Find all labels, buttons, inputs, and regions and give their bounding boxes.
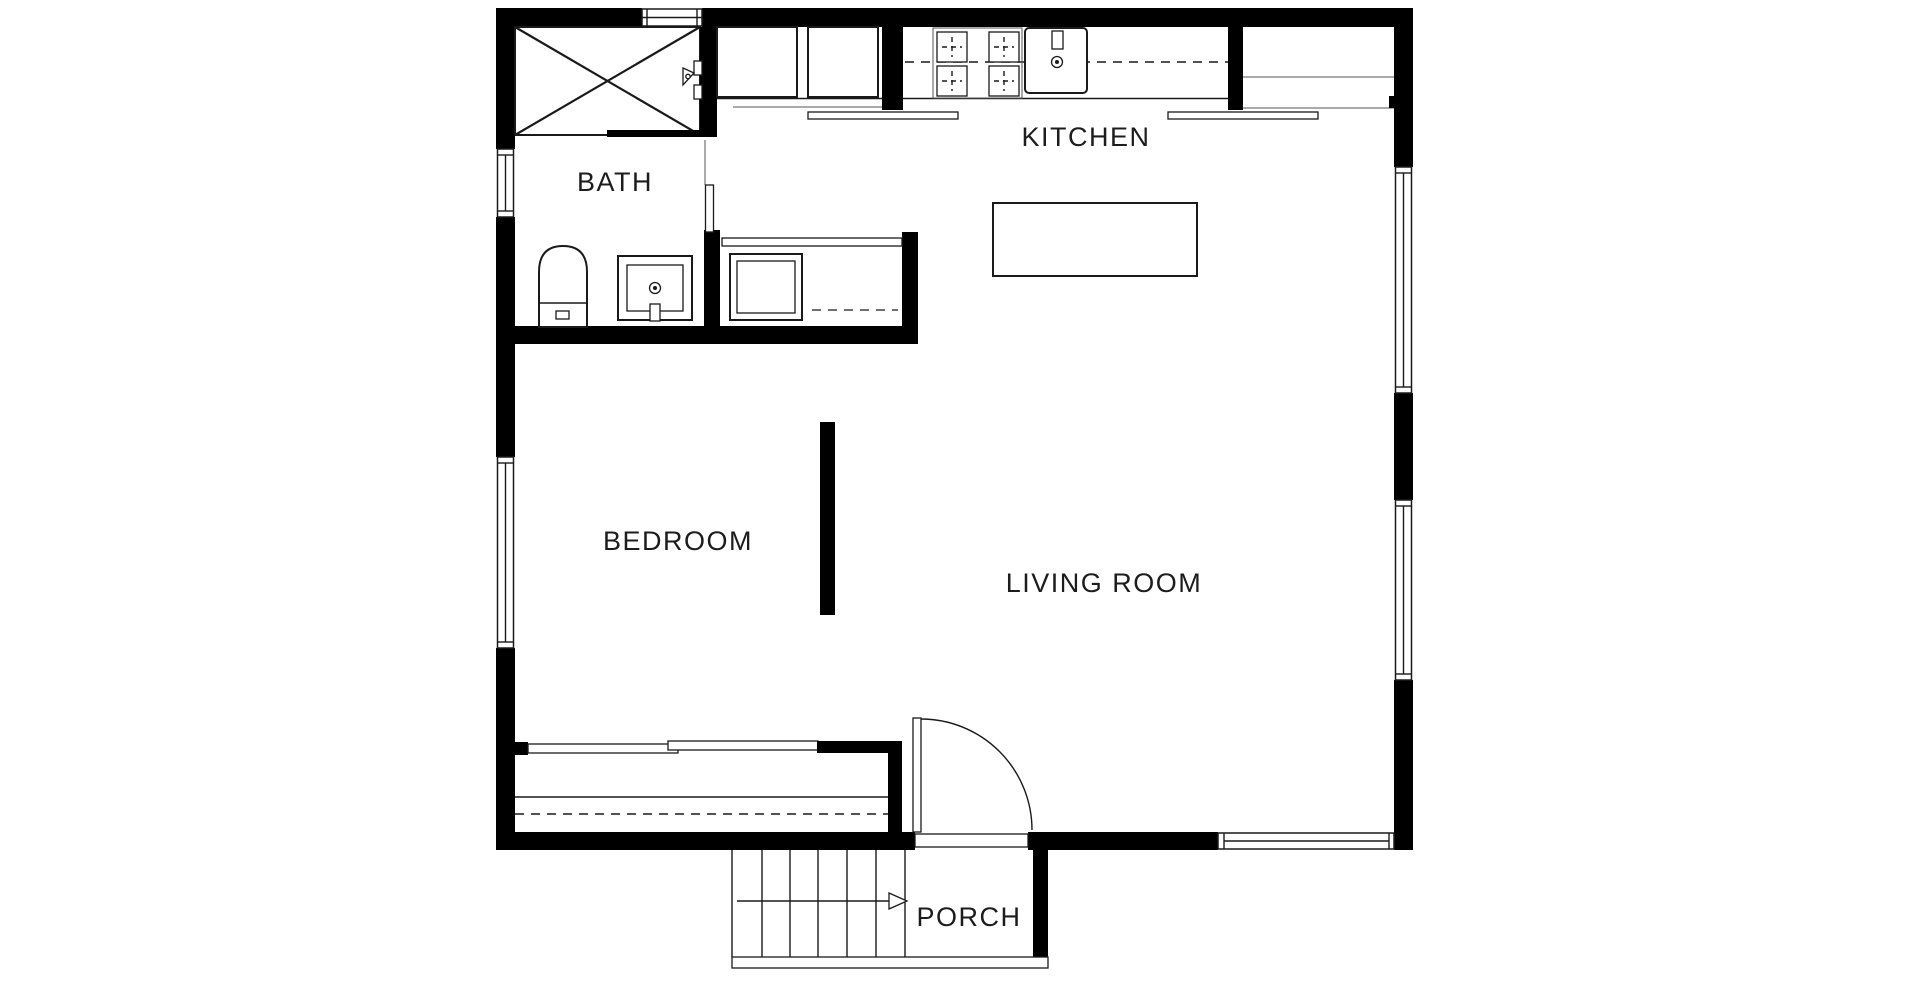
sliding-door-panel-1 — [528, 744, 678, 753]
wall-left-1 — [496, 8, 515, 149]
right-nook — [1228, 27, 1394, 110]
shower-entry-bar — [607, 130, 702, 137]
slider-left-stub — [515, 742, 528, 755]
nook-wall-stub — [1228, 27, 1243, 110]
shower-right-wall — [700, 27, 717, 137]
bath-sink-icon — [618, 256, 692, 321]
wall-left-3 — [496, 648, 515, 850]
room-divider-wall — [820, 422, 835, 615]
window-right-upper — [1396, 167, 1412, 393]
refrigerator-icon — [717, 27, 797, 97]
room-label-bath: BATH — [577, 167, 653, 197]
kitchen-wall-stub — [882, 27, 903, 110]
room-label-living-room: LIVING ROOM — [1006, 568, 1203, 598]
wall-top-left — [496, 8, 642, 27]
shower — [515, 27, 717, 137]
wall-bottom-1 — [496, 832, 915, 850]
wall-bottom-2 — [1028, 832, 1218, 850]
floor-plan-canvas: BATH KITCHEN BEDROOM LIVING ROOM PORCH — [0, 0, 1920, 987]
bath-door-wall — [704, 230, 720, 328]
entry-door — [913, 718, 1032, 847]
burner — [937, 66, 967, 96]
porch-right-wall — [1033, 847, 1048, 968]
burner — [937, 32, 967, 62]
closet-shelf — [722, 238, 902, 246]
window-left-lower — [498, 457, 514, 648]
wall-right-2 — [1394, 393, 1413, 500]
cabinet-icon — [808, 27, 878, 97]
deck-right-wall — [888, 742, 902, 834]
toilet-icon — [539, 246, 587, 327]
nook-tick — [1389, 96, 1394, 108]
bath-bottom-wall — [515, 326, 918, 344]
window-top — [642, 9, 702, 26]
wall-top-right — [702, 8, 1413, 27]
wall-right-3 — [1394, 680, 1413, 850]
floor-mat-right — [1168, 112, 1318, 119]
wall-bottom-3 — [1394, 832, 1413, 850]
burner — [989, 32, 1019, 62]
floor-plan: BATH KITCHEN BEDROOM LIVING ROOM PORCH — [0, 0, 1920, 987]
closet-right-wall — [902, 232, 918, 330]
washer-icon — [730, 254, 802, 320]
kitchen-sink-icon — [1025, 28, 1087, 93]
laundry-closet — [722, 238, 902, 320]
stairs — [732, 850, 907, 957]
entry-door-leaf — [913, 718, 921, 832]
room-label-bedroom: BEDROOM — [603, 526, 753, 556]
kitchen-island — [993, 203, 1197, 276]
sliding-door-panel-2 — [668, 741, 818, 750]
wall-right-1 — [1394, 8, 1413, 167]
entry-threshold — [915, 834, 1028, 847]
bath-door-leaf — [706, 185, 714, 232]
entry-door-swing-arc — [921, 719, 1032, 830]
window-left-upper — [498, 149, 514, 217]
room-label-porch: PORCH — [916, 902, 1021, 932]
deck-strip — [515, 741, 902, 834]
room-label-kitchen: KITCHEN — [1021, 122, 1150, 152]
floor-mat-left — [808, 112, 958, 119]
burner — [989, 66, 1019, 96]
wall-left-2 — [496, 217, 515, 457]
window-right-lower — [1396, 500, 1412, 680]
cooktop-icon — [933, 28, 1022, 98]
window-bottom — [1218, 833, 1394, 849]
porch-stair-rail — [732, 957, 1048, 968]
